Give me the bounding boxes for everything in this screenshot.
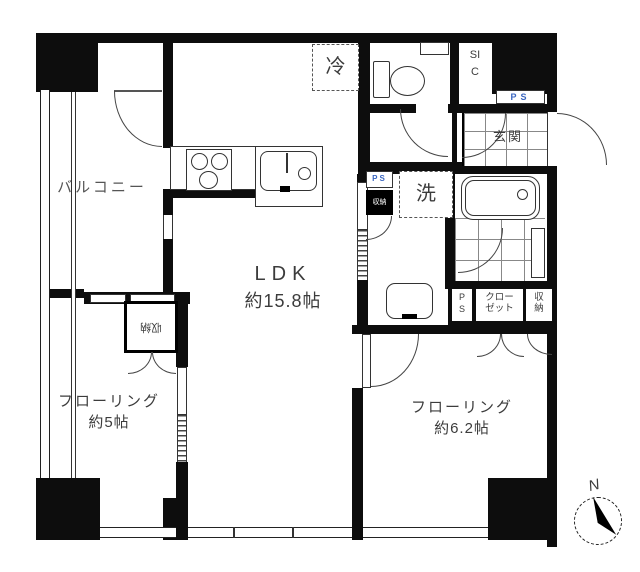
west-room-sliding-door-track xyxy=(177,415,187,462)
sic-label-text: SIC xyxy=(469,47,482,81)
toilet-door-arc xyxy=(400,109,448,157)
entrance-ps-box: PS xyxy=(496,90,545,104)
wall-balcony-kitchen xyxy=(163,40,173,148)
faucet-knob xyxy=(298,167,311,180)
kitchen-side-window xyxy=(163,215,173,239)
stove-burner xyxy=(199,171,218,189)
faucet-base xyxy=(280,186,290,192)
window-mullion xyxy=(292,527,294,538)
west-closet-door-arc-left xyxy=(128,352,152,374)
balcony-door-arc xyxy=(114,91,162,147)
front-door-swing-arc xyxy=(557,113,607,165)
faucet-stem xyxy=(286,153,288,173)
wall-toilet-sic xyxy=(450,43,459,105)
washroom-storage-box: 収納 xyxy=(366,190,393,215)
stove-burner xyxy=(211,153,228,170)
east-storage-label: 収納 xyxy=(534,289,545,315)
west-room-label: フローリング xyxy=(50,390,168,411)
wall-balcony-seg1 xyxy=(163,197,173,215)
closet-ps-box: PS xyxy=(452,289,472,321)
window-bottom-east xyxy=(363,527,488,538)
west-room-sliding-door-panel xyxy=(177,367,187,415)
washroom-storage-label: 収納 xyxy=(366,190,393,215)
washing-machine-label: 洗 xyxy=(400,172,452,216)
sic-room-label: SIC xyxy=(460,47,490,105)
closet-ps-label: PS xyxy=(457,289,467,315)
east-room-door-arc xyxy=(371,334,419,387)
wall-balcony-divider xyxy=(50,289,84,298)
refrigerator-space: 冷 xyxy=(312,44,359,91)
window-bottom-ldk xyxy=(188,527,352,538)
west-room-closet-box: 収納 xyxy=(124,301,178,353)
east-room-label: フローリング xyxy=(403,396,521,417)
window-mullion xyxy=(233,527,235,538)
east-room-door-leaf xyxy=(362,334,371,388)
bath-counter xyxy=(531,228,545,278)
wall-balcony-seg2 xyxy=(163,239,173,292)
wall-block-bottom-right xyxy=(488,478,557,540)
wall-right-upper xyxy=(547,36,557,113)
toilet-tank xyxy=(373,61,390,98)
vanity-drain xyxy=(402,314,417,319)
balcony-label: バルコニー xyxy=(52,176,152,197)
east-storage-box: 収納 xyxy=(526,289,552,321)
floor-plan: 玄関 SIC PS 冷 バルコニー LDK 約15.8帖 PS 収納 洗 xyxy=(0,0,640,572)
washroom-ps-box: PS xyxy=(366,171,393,188)
west-room-closet-label: 収納 xyxy=(127,304,175,350)
compass-north-label: N xyxy=(578,474,609,497)
west-room-wall-slot xyxy=(90,294,126,303)
east-storage-door-arc xyxy=(527,334,552,355)
front-door-gap xyxy=(547,112,557,166)
ldk-label: LDK xyxy=(233,263,333,286)
wall-west-room-east-lower xyxy=(176,462,188,540)
closet-door-arc-left xyxy=(477,334,501,357)
washroom-storage-door-arc xyxy=(366,216,392,240)
ldk-size-label: 約15.8帖 xyxy=(220,287,346,313)
west-room-size-label: 約5帖 xyxy=(50,411,168,432)
washing-machine-space: 洗 xyxy=(399,171,453,218)
wall-entrance-top xyxy=(448,104,557,113)
wall-top xyxy=(88,33,557,43)
toilet-cabinet xyxy=(420,42,449,55)
refrigerator-label: 冷 xyxy=(313,45,358,89)
wall-east-room-top xyxy=(352,325,557,334)
window-bottom-west xyxy=(100,527,176,538)
bathtub-drain xyxy=(517,189,528,200)
washroom-ps-label: PS xyxy=(367,172,392,186)
closet-box: クローゼット xyxy=(476,289,523,321)
stove-burner xyxy=(191,153,208,170)
closet-door-arc-right xyxy=(501,334,524,357)
window-left-outer xyxy=(40,90,50,478)
east-room-size-label: 約6.2帖 xyxy=(403,417,521,438)
wall-entrance-step xyxy=(452,113,457,166)
wall-east-room-west xyxy=(352,388,363,540)
toilet-bowl xyxy=(390,66,425,96)
entrance-ps-label: PS xyxy=(497,91,544,103)
entrance-label: 玄関 xyxy=(486,126,530,145)
wall-block-bottom-left xyxy=(36,478,100,540)
west-closet-door-arc-right xyxy=(152,352,176,374)
closet-label: クローゼット xyxy=(484,289,516,315)
